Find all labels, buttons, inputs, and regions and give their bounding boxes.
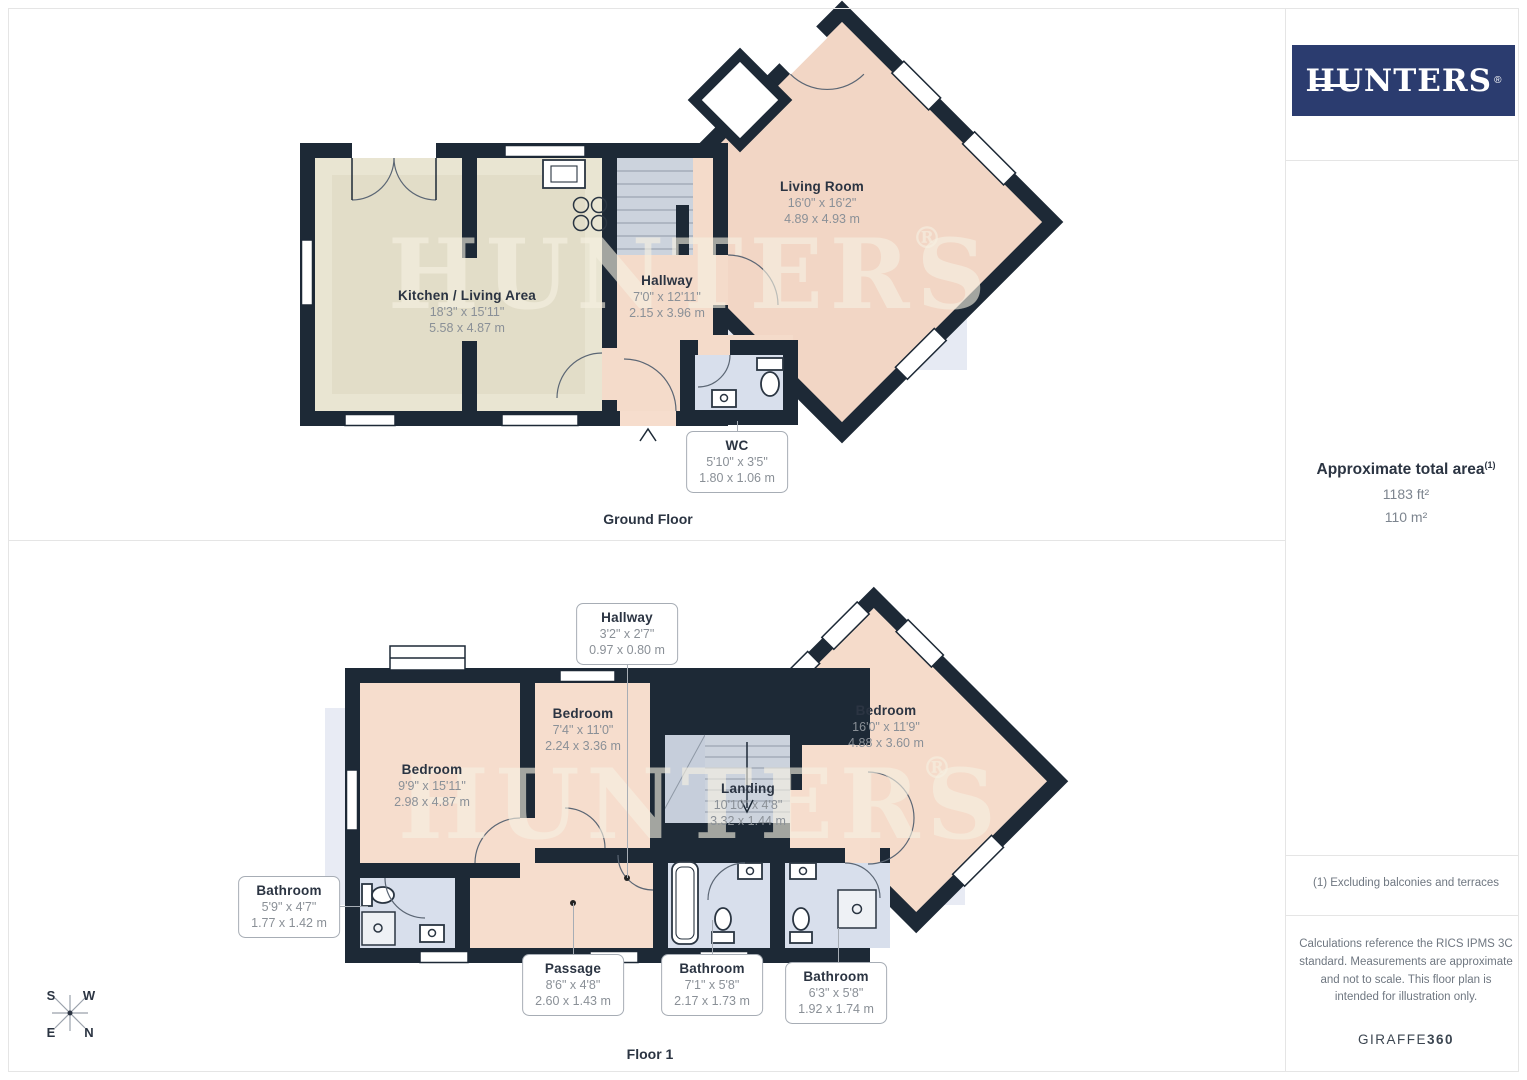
giraffe360-credit: GIRAFFE360 <box>1285 1032 1527 1047</box>
footnote-text: (1) Excluding balconies and terraces <box>1285 877 1527 889</box>
floors-divider <box>8 540 1285 541</box>
callout-f1-hallway: Hallway 3'2" x 2'7" 0.97 x 0.80 m <box>576 603 678 665</box>
watermark-text: HUNTERS <box>398 748 1003 861</box>
leader-line-passage <box>573 903 574 958</box>
leader-line-bathroom-right <box>838 928 839 965</box>
label-living-room: Living Room 16'0" x 16'2" 4.89 x 4.93 m <box>780 179 864 227</box>
total-area-footnote-marker: (1) <box>1484 460 1495 470</box>
label-kitchen-living: Kitchen / Living Area 18'3" x 15'11" 5.5… <box>398 288 536 336</box>
sidebar-divider-footnote-top <box>1285 855 1519 856</box>
compass-n: N <box>84 1025 93 1040</box>
floor1-title: Floor 1 <box>627 1046 674 1062</box>
watermark-reg: ® <box>912 221 942 256</box>
compass-rose: S W E N <box>25 968 115 1058</box>
total-area-ft: 1183 ft² <box>1285 486 1527 502</box>
kitchen-sink-icon <box>543 160 585 188</box>
sidebar: HUNTERS® Approximate total area(1) 1183 … <box>1285 0 1527 1080</box>
compass-s: S <box>47 988 56 1003</box>
label-landing: Landing 10'10" x 4'8" 3.32 x 1.44 m <box>710 781 786 829</box>
callout-bathroom-left: Bathroom 5'9" x 4'7" 1.77 x 1.42 m <box>238 876 340 938</box>
logo-text: HUNTERS <box>1306 63 1493 99</box>
sidebar-divider <box>1285 8 1286 1072</box>
compass-w: W <box>83 988 96 1003</box>
leader-line-f1-hallway <box>627 661 628 878</box>
entrance-arrow-icon <box>640 429 656 441</box>
sidebar-divider-footnote-bottom <box>1285 915 1519 916</box>
label-bedroom-right: Bedroom 16'0" x 11'9" 4.88 x 3.60 m <box>848 703 924 751</box>
disclaimer-text: Calculations reference the RICS IPMS 3C … <box>1299 936 1513 1007</box>
callout-passage: Passage 8'6" x 4'8" 2.60 x 1.43 m <box>522 954 624 1016</box>
watermark-reg: ® <box>922 751 952 786</box>
total-area-m: 110 m² <box>1285 509 1527 525</box>
compass-e: E <box>47 1025 56 1040</box>
callout-bathroom-middle: Bathroom 7'1" x 5'8" 2.17 x 1.73 m <box>661 954 763 1016</box>
hunters-logo: HUNTERS® <box>1292 45 1515 116</box>
logo-strike-line <box>1312 84 1358 87</box>
label-bedroom-middle: Bedroom 7'4" x 11'0" 2.24 x 3.36 m <box>545 706 621 754</box>
ground-floor-title: Ground Floor <box>603 511 692 527</box>
callout-bathroom-right: Bathroom 6'3" x 5'8" 1.92 x 1.74 m <box>785 962 887 1024</box>
total-area-label: Approximate total area <box>1317 461 1485 478</box>
label-bedroom-left: Bedroom 9'9" x 15'11" 2.98 x 4.87 m <box>394 762 470 810</box>
leader-line-bathroom-middle <box>712 920 713 958</box>
logo-registered-mark: ® <box>1494 75 1501 86</box>
wc-room <box>680 340 798 425</box>
label-hallway-gf: Hallway 7'0" x 12'11" 2.15 x 3.96 m <box>629 273 705 321</box>
callout-wc: WC 5'10" x 3'5" 1.80 x 1.06 m <box>686 431 788 493</box>
total-area-block: Approximate total area(1) 1183 ft² 110 m… <box>1285 460 1527 525</box>
sidebar-divider-top <box>1285 160 1519 161</box>
